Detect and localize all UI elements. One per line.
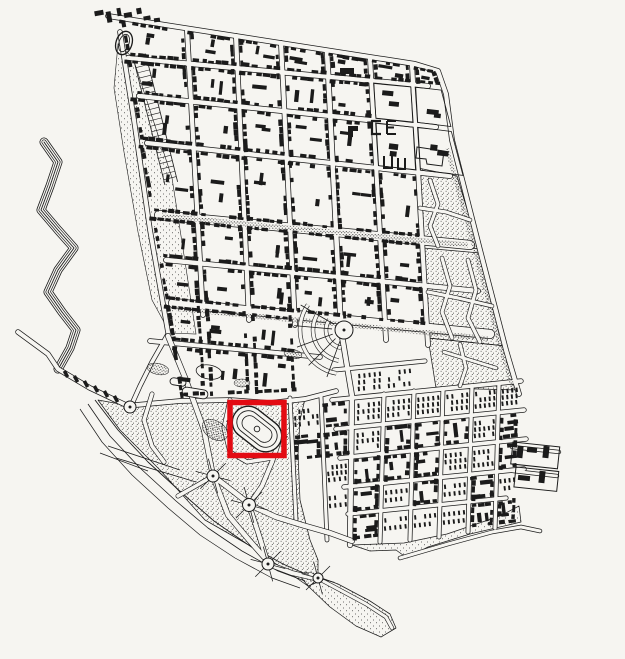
city-master-plan-figure bbox=[0, 0, 625, 659]
city-master-plan-map bbox=[0, 0, 625, 659]
